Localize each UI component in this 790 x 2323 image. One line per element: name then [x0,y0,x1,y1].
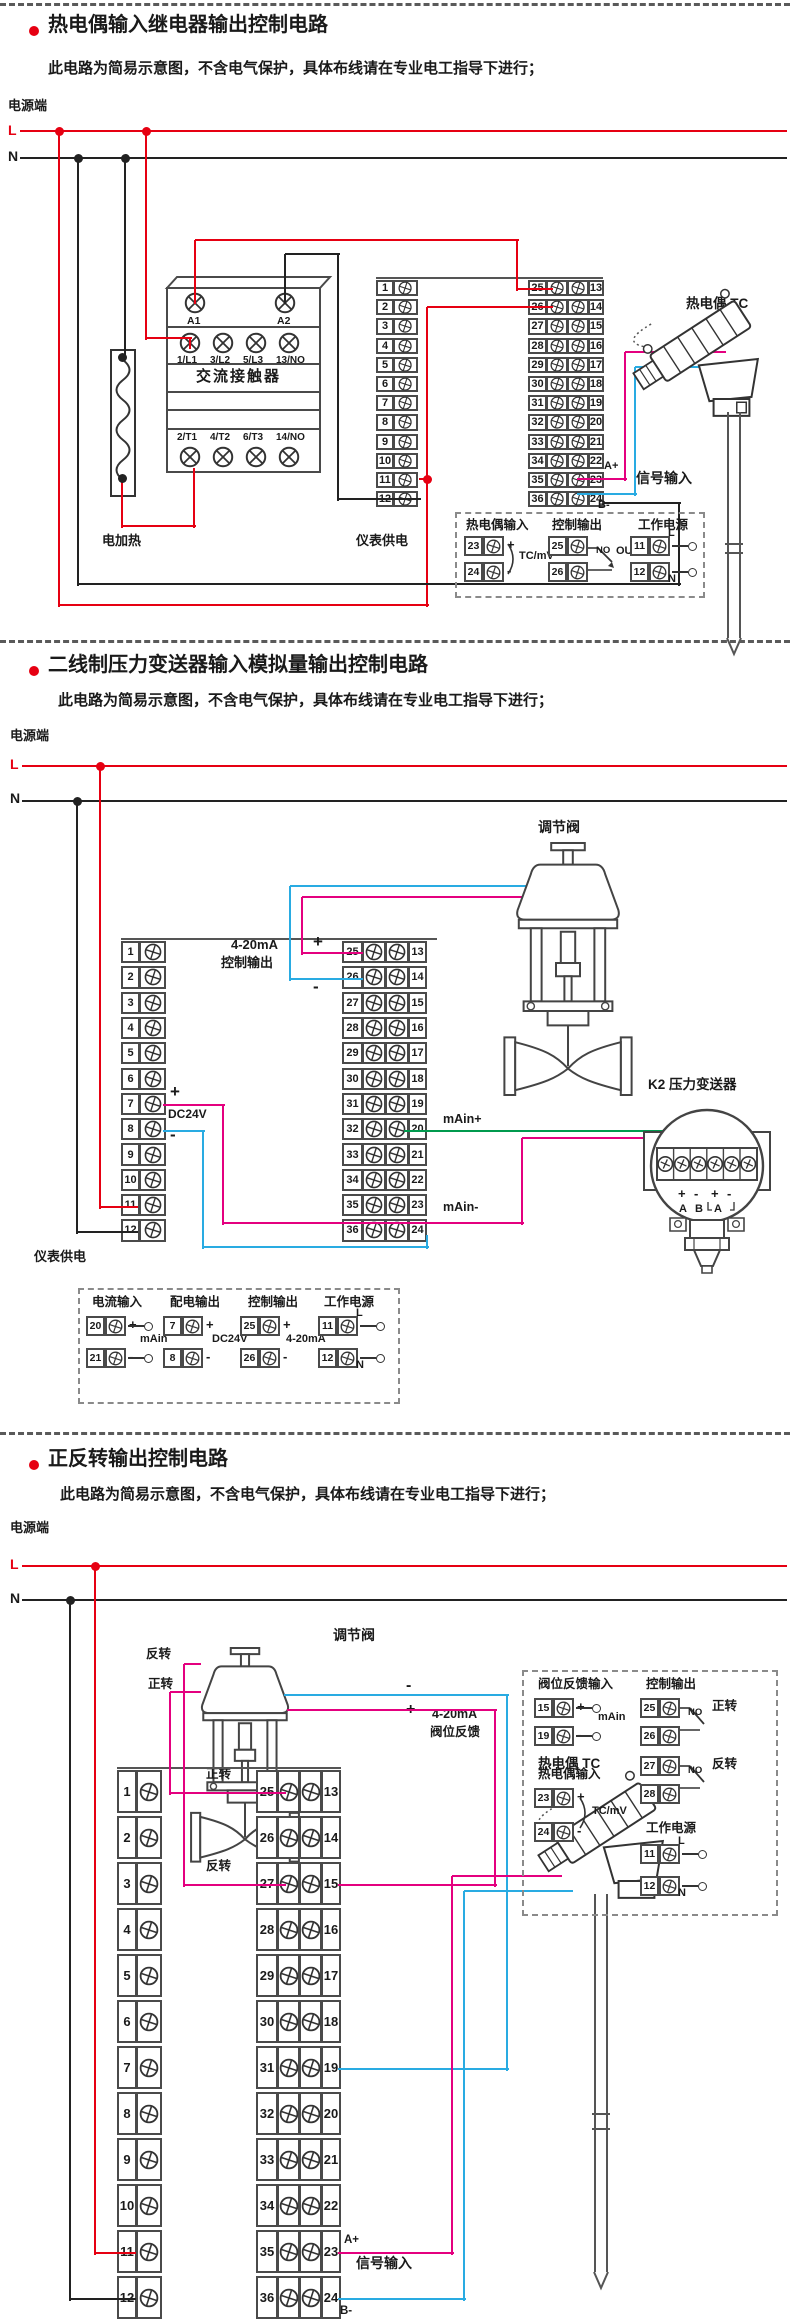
meter1-left-screw [393,453,418,469]
meter3-right-screw [299,2230,322,2273]
meter2-right-screw [362,992,386,1014]
detail-terminal-screw [259,1348,280,1368]
thermocouple-probe-tip [593,2272,609,2290]
meter3-right-screw [299,1770,322,1813]
detail-terminal-number: 7 [163,1316,182,1336]
open-terminal-icon [592,1732,601,1741]
feedback-minus-wire [506,1695,508,2071]
detail-terminal-screw [659,1784,680,1804]
live-wire [516,240,518,291]
section2-subtitle: 此电路为简易示意图，不含电气保护，具体布线请在专业电工指导下进行； [58,693,553,709]
meter2-left-screw [139,1093,166,1115]
meter3-left-screw [136,1908,162,1951]
meter3-right-number: 28 [256,1908,278,1951]
meter1-right-screw [567,414,589,430]
valve-minus-wire [290,885,533,887]
detail-terminal-number: 23 [534,1788,553,1808]
b-minus-label: B- [598,500,610,512]
meter2-right-number: 15 [408,992,427,1014]
meter2-left-screw [139,1194,166,1216]
meter1-left-screw [393,280,418,296]
forward-wire [170,1792,286,1794]
meter3-left-screw [136,2046,162,2089]
meter1-right-screw [546,434,568,450]
meter1-left-number: 11 [376,472,394,488]
dc24v-label: DC24V [168,1108,207,1121]
detail-terminal-number: 28 [640,1784,659,1804]
meter2-right-screw [362,1017,386,1039]
meter1-left-number: 10 [376,453,394,469]
contactor-name: 交流接触器 [196,369,281,385]
contactor-terminal-label: A1 [187,316,200,327]
meter1-left-number: 3 [376,318,394,334]
detail-group-title: 工作电源 [638,519,688,532]
a-plus-label: A+ [604,461,618,473]
meter1-right-number: 22 [588,453,604,469]
feedback-plus-wire [338,1884,497,1886]
fwd-out-label: 正转 [712,1700,737,1713]
live-wire [195,239,519,241]
detail-terminal-sign: L [356,1308,363,1320]
meter2-right-screw [385,1068,409,1090]
meter3-right-screw [299,2276,322,2319]
meter2-left-number: 4 [121,1017,140,1039]
neutral-wire [124,158,126,357]
meter3-right-number: 26 [256,1816,278,1859]
meter3-left-screw [136,1816,162,1859]
meter2-right-screw [385,1093,409,1115]
live-wire [58,131,60,607]
meter3-right-screw [299,1908,322,1951]
detail-terminal-number: 12 [630,562,649,582]
tc-a-plus-wire [451,1876,453,2255]
meter3-right-number: 29 [256,1954,278,1997]
meter2-right-screw [362,1068,386,1090]
meter3-left-number: 1 [117,1770,137,1813]
meter3-left-screw [136,2230,162,2273]
meter3-right-number: 18 [321,2000,341,2043]
neutral-wire [604,502,681,504]
meter3-left-number: 7 [117,2046,137,2089]
meter1-right-number: 36 [528,491,547,507]
meter1-right-screw [567,357,589,373]
meter1-left-number: 2 [376,299,394,315]
detail-terminal-number: 25 [640,1698,659,1718]
meter1-right-screw [567,472,589,488]
detail-terminal-number: 8 [163,1348,182,1368]
svg-text:+: + [678,1186,686,1201]
meter3-right-number: 36 [256,2276,278,2319]
open-terminal-icon [376,1354,385,1363]
tc-b-minus-wire [577,493,637,495]
detail-group-title: 工作电源 [324,1296,374,1309]
meter2-right-screw [385,1042,409,1064]
detail-terminal-sign: N [678,1888,686,1900]
tc-a-plus-wire [624,352,626,481]
feedback-minus-wire [338,2068,509,2070]
live-wire [427,306,553,308]
meter1-right-number: 32 [528,414,547,430]
live-wire [59,604,429,606]
detail-terminal-screw [649,536,670,556]
detail-terminal-screw [659,1726,680,1746]
meter1-right-number: 31 [528,395,547,411]
contactor-terminal-label: 14/NO [276,433,305,444]
contactor-screw-load [179,446,201,473]
contactor-terminal-label: 3/L2 [210,356,230,367]
meter2-right-number: 19 [408,1093,427,1115]
loop-wire [203,1246,429,1248]
meter2-right-number: 21 [408,1143,427,1165]
meter2-right-number: 17 [408,1042,427,1064]
live-bus [22,765,787,767]
junction-dot [55,127,64,136]
thermocouple-head [628,300,776,418]
meter1-right-screw [546,491,568,507]
detail-terminal-number: 19 [534,1726,553,1746]
feedback-name-label: 阀位反馈 [430,1726,480,1739]
thermocouple-probe [606,1894,608,2272]
detail-group-title: 阀位反馈输入 [538,1678,613,1691]
section-divider [0,1432,790,1435]
open-terminal-icon [144,1354,153,1363]
meter2-left-screw [139,1118,166,1140]
meter1-right-number: 17 [588,357,604,373]
detail-terminal-number: 12 [640,1876,659,1896]
svg-text:-: - [727,1186,731,1201]
meter1-left-number: 7 [376,395,394,411]
detail-terminal-number: 24 [464,562,483,582]
meter1-right-number: 14 [588,299,604,315]
meter1-right-screw [546,338,568,354]
meter2-right-number: 28 [342,1017,363,1039]
neutral-wire [337,254,339,501]
meter-supply-label: 仪表供电 [356,534,408,548]
live-wire [99,766,101,1209]
junction-dot [121,154,130,163]
meter1-right-screw [567,299,589,315]
meter2-left-screw [139,1068,166,1090]
meter1-right-number: 33 [528,434,547,450]
detail-terminal-number: 26 [640,1726,659,1746]
output-name-label: 控制输出 [221,956,273,970]
transmitter-label: K2 压力变送器 [648,1078,737,1092]
detail-terminal-sign: L [678,1836,685,1848]
meter1-left-number: 1 [376,280,394,296]
contactor-terminal-label: 5/L3 [243,356,263,367]
detail-terminal-number: 25 [548,536,567,556]
thermocouple-probe [727,412,729,638]
detail-terminal-screw [553,1822,574,1842]
minus-label: - [406,1678,411,1695]
detail-group-title: 控制输出 [248,1296,298,1309]
contactor-terminal-label: 1/L1 [177,356,197,367]
meter1-right-screw [567,376,589,392]
meter2-right-number: 14 [408,966,427,988]
junction-dot [74,154,83,163]
neutral-bus [20,157,787,159]
meter1-left-number: 4 [376,338,394,354]
meter1-right-number: 16 [588,338,604,354]
tc-a-plus-wire [338,2252,454,2254]
open-terminal-icon [698,1850,707,1859]
detail-terminal-sign: L [668,528,675,540]
contactor-screw-load [278,446,300,473]
section3-subtitle: 此电路为简易示意图，不含电气保护，具体布线请在专业电工指导下进行； [60,1487,555,1503]
wire-segment [576,1707,592,1709]
meter3-left-number: 10 [117,2184,137,2227]
neutral-bus [22,1599,787,1601]
meter2-right-screw [362,1093,386,1115]
detail-terminal-screw [649,562,670,582]
detail-terminal-number: 25 [240,1316,259,1336]
meter3-right-screw [277,2092,300,2135]
svg-text:B: B [695,1203,703,1215]
neutral-bus [22,800,787,802]
wire-segment [576,1735,592,1737]
meter2-right-screw [362,1194,386,1216]
open-terminal-icon [688,542,697,551]
loop-wire [426,1235,428,1249]
detail-terminal-screw [259,1316,280,1336]
loop-wire [521,1138,523,1225]
detail-terminal-sign: N [356,1360,364,1372]
valve-label: 调节阀 [333,1628,375,1643]
plus-label: + [170,1083,180,1101]
meter2-left-screw [139,1169,166,1191]
meter1-right-screw [567,338,589,354]
tc-b-minus-wire [338,2298,466,2300]
signal-input-label: 信号输入 [636,471,692,486]
live-label: L [8,123,17,138]
meter3-left-number: 3 [117,1862,137,1905]
detail-terminal-screw [182,1348,203,1368]
meter2-left-screw [139,1042,166,1064]
loop-wire [202,1131,204,1249]
meter1-left-screw [393,299,418,315]
meter3-right-screw [299,2138,322,2181]
detail-terminal-sign: + [206,1318,214,1332]
live-wire [100,1206,138,1208]
detail-terminal-screw [567,536,588,556]
meter2-left-number: 5 [121,1042,140,1064]
meter3-right-screw [277,2138,300,2181]
detail-terminal-number: 21 [86,1348,105,1368]
valve-minus-wire [289,886,291,981]
valve-plus-wire [302,952,363,954]
meter1-right-screw [567,318,589,334]
meter3-right-number: 31 [256,2046,278,2089]
meter2-right-screw [362,1143,386,1165]
meter1-right-number: 27 [528,318,547,334]
meter3-right-screw [299,2046,322,2089]
meter2-left-number: 8 [121,1118,140,1140]
meter3-left-screw [136,1862,162,1905]
meter1-right-number: 35 [528,472,547,488]
power-side-label: 电源端 [10,1521,49,1535]
meter3-right-number: 33 [256,2138,278,2181]
meter1-right-number: 19 [588,395,604,411]
meter2-left-screw [139,966,166,988]
svg-text:-: - [694,1186,698,1201]
junction-dot [423,475,432,484]
meter2-right-screw [362,1118,386,1140]
main-minus-label: mAin- [443,1201,478,1214]
thermocouple-probe [725,552,743,554]
meter1-right-screw [567,395,589,411]
detail-terminal-screw [553,1788,574,1808]
tc-a-plus-wire [577,478,627,480]
valve-label: 调节阀 [538,820,580,835]
no-label: NO [596,546,610,556]
meter1-left-number: 6 [376,376,394,392]
thermocouple-probe [592,2128,610,2130]
meter2-left-screw [139,1219,166,1241]
live-wire [94,1566,96,2255]
meter2-right-screw [385,1143,409,1165]
reverse-wire [184,1663,201,1665]
neutral-label: N [10,1591,20,1606]
feedback-plus-wire [494,1710,496,1887]
section2-title: 二线制压力变送器输入模拟量输出控制电路 [48,655,428,676]
meter3-right-screw [277,1954,300,1997]
live-wire [194,240,196,304]
neutral-wire [77,1231,138,1233]
wire-segment [682,1853,698,1855]
live-label: L [10,1557,19,1572]
detail-terminal-screw [659,1844,680,1864]
detail-terminal-sign: N [668,574,676,586]
meter2-left-screw [139,1017,166,1039]
meter2-left-number: 9 [121,1143,140,1165]
thermocouple-probe [592,2113,610,2115]
meter1-right-screw [546,318,568,334]
bracket-icon [506,542,520,576]
page-top-divider [0,3,790,6]
open-terminal-icon [688,568,697,577]
meter2-right-number: 34 [342,1169,363,1191]
meter2-right-screw [385,992,409,1014]
detail-terminal-number: 15 [534,1698,553,1718]
feedback-plus-wire [287,1709,497,1711]
meter-supply-label: 仪表供电 [34,1250,86,1264]
detail-terminal-screw [182,1316,203,1336]
meter3-right-screw [299,2000,322,2043]
neutral-wire [77,158,79,586]
meter2-right-number: 35 [342,1194,363,1216]
meter2-left-number: 7 [121,1093,140,1115]
meter3-left-number: 5 [117,1954,137,1997]
meter1-left-screw [393,434,418,450]
meter1-right-number: 29 [528,357,547,373]
detail-terminal-screw [483,562,504,582]
meter2-left-screw [139,992,166,1014]
meter2-right-screw [385,966,409,988]
detail-terminal-number: 26 [548,562,567,582]
reverse-wire [183,1664,185,1887]
live-wire [95,2252,136,2254]
meter2-right-screw [362,941,386,963]
meter1-right-number: 13 [588,280,604,296]
main-plus-label: mAin+ [443,1113,482,1126]
meter3-left-screw [136,2000,162,2043]
bracket-icon [578,1796,592,1830]
meter3-right-screw [277,1816,300,1859]
meter1-left-screw [393,338,418,354]
meter3-left-screw [136,2184,162,2227]
heater-label: 电加热 [102,534,141,548]
meter2-right-screw [385,1169,409,1191]
meter3-right-screw [299,2092,322,2135]
tc-b-minus-wire [463,1891,465,2301]
meter1-right-number: 28 [528,338,547,354]
meter1-left-screw [393,414,418,430]
section3-bullet-icon [29,1460,39,1470]
thermocouple-probe [594,1894,596,2272]
live-wire [517,288,553,290]
neutral-wire [284,254,286,304]
detail-terminal-screw [567,562,588,582]
meter1-right-number: 34 [528,453,547,469]
thermocouple-probe [725,543,743,545]
detail-note: mAin [598,1712,626,1724]
power-side-label: 电源端 [10,729,49,743]
wiring-diagram-page: 热电偶输入继电器输出控制电路 此电路为简易示意图，不含电气保护，具体布线请在专业… [0,0,790,2323]
meter3-right-screw [277,2230,300,2273]
reverse-label: 反转 [146,1648,171,1661]
detail-group-title: 控制输出 [552,519,602,532]
meter2-left-number: 10 [121,1169,140,1191]
junction-dot [142,127,151,136]
detail-group-title: 配电输出 [170,1296,220,1309]
reverse-wire [184,1884,286,1886]
minus-label: - [313,978,319,996]
detail-terminal-number: 24 [534,1822,553,1842]
meter1-right-screw [567,280,589,296]
svg-text:+: + [711,1186,719,1201]
meter1-right-screw [546,395,568,411]
live-wire [145,131,147,340]
feedback-minus-wire [284,1694,509,1696]
meter3-right-screw [277,2046,300,2089]
neutral-wire [285,253,340,255]
forward-wire [169,1692,171,1795]
section3-title: 正反转输出控制电路 [48,1449,228,1470]
meter1-right-number: 30 [528,376,547,392]
neutral-wire [69,1600,71,2301]
meter2-right-screw [385,1194,409,1216]
meter3-right-number: 30 [256,2000,278,2043]
meter2-left-number: 1 [121,941,140,963]
meter3-right-number: 34 [256,2184,278,2227]
meter3-left-number: 2 [117,1816,137,1859]
meter1-right-number: 18 [588,376,604,392]
forward-label: 正转 [148,1678,173,1691]
meter1-right-screw [546,357,568,373]
live-wire [121,478,123,528]
contactor-terminal-label: 6/T3 [243,433,263,444]
detail-group-title: 控制输出 [646,1678,696,1691]
open-terminal-icon [144,1322,153,1331]
meter3-right-screw [277,2184,300,2227]
valve-minus-wire [290,978,363,980]
section1-subtitle: 此电路为简易示意图，不含电气保护，具体布线请在专业电工指导下进行； [48,61,543,77]
wire-segment [360,1325,376,1327]
no-label: NO [688,1708,702,1718]
no-label: NO [688,1766,702,1776]
section-divider [0,640,790,643]
live-wire [146,337,192,339]
